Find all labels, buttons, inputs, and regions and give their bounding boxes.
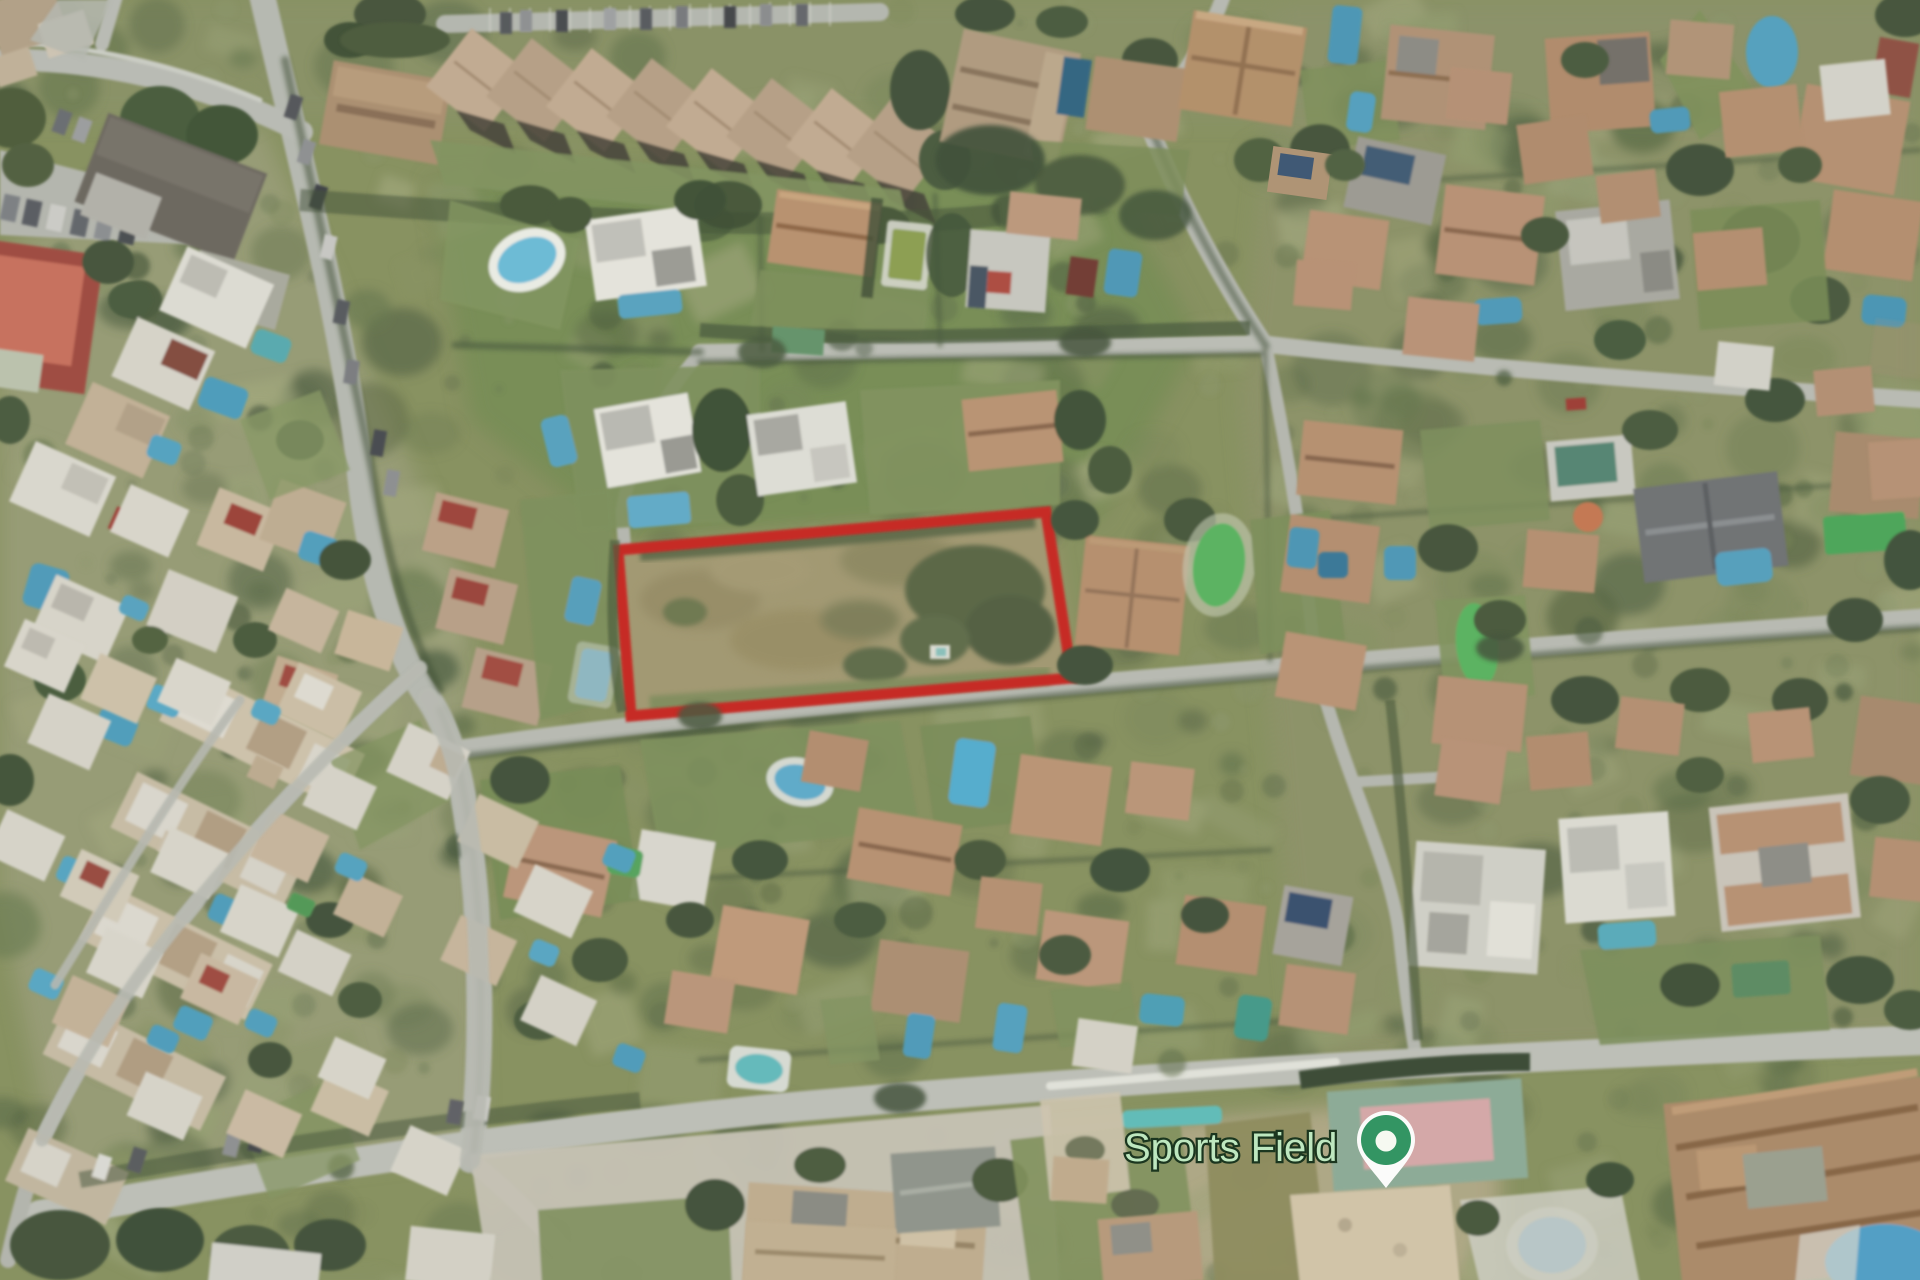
svg-text:Sports Field: Sports Field [1124, 1126, 1337, 1170]
